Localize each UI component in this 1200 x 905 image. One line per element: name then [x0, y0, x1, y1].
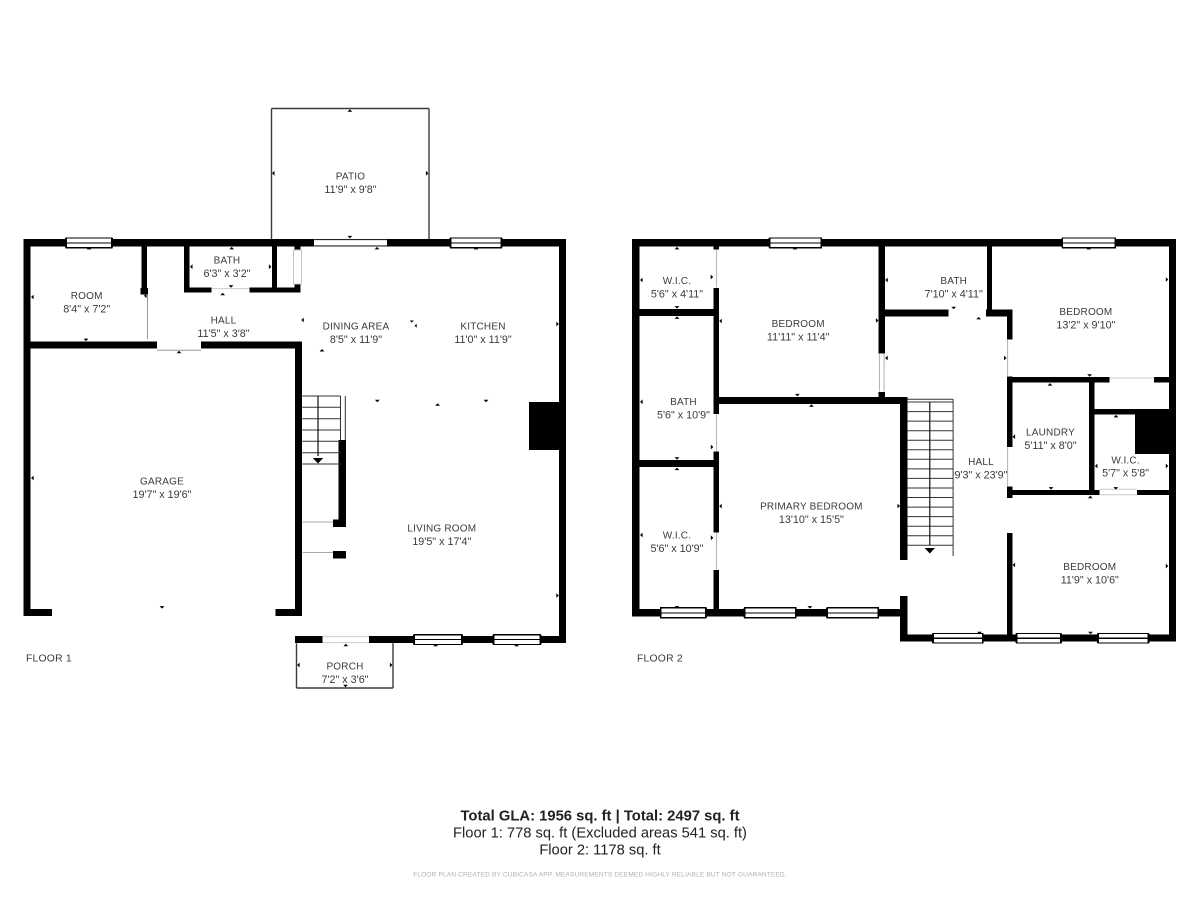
svg-text:5'7" x 5'8": 5'7" x 5'8": [1102, 468, 1149, 480]
svg-text:BATH: BATH: [670, 397, 697, 408]
svg-text:7'10" x 4'11": 7'10" x 4'11": [925, 288, 983, 300]
svg-text:11'11" x 11'4": 11'11" x 11'4": [767, 331, 830, 343]
svg-text:7'2" x 3'6": 7'2" x 3'6": [322, 674, 369, 686]
svg-text:HALL: HALL: [968, 457, 994, 468]
svg-text:BATH: BATH: [940, 276, 967, 287]
svg-text:W.I.C.: W.I.C.: [1111, 455, 1139, 466]
svg-text:13'2" x 9'10": 13'2" x 9'10": [1056, 319, 1115, 331]
svg-text:GARAGE: GARAGE: [140, 477, 184, 488]
svg-text:11'9" x 10'6": 11'9" x 10'6": [1061, 574, 1119, 586]
svg-text:9'3" x 23'9": 9'3" x 23'9": [955, 469, 1008, 481]
svg-text:BEDROOM: BEDROOM: [1059, 307, 1112, 318]
svg-text:8'4" x 7'2": 8'4" x 7'2": [63, 303, 110, 315]
svg-text:5'6" x 4'11": 5'6" x 4'11": [651, 288, 703, 300]
svg-text:5'6" x 10'9": 5'6" x 10'9": [651, 543, 704, 555]
svg-text:Total GLA: 1956 sq. ft | Total: Total GLA: 1956 sq. ft | Total: 2497 sq.…: [460, 809, 739, 825]
svg-text:19'7" x 19'6": 19'7" x 19'6": [133, 489, 192, 501]
svg-text:ROOM: ROOM: [71, 291, 103, 302]
svg-text:FLOOR 1: FLOOR 1: [26, 654, 72, 665]
svg-text:DINING AREA: DINING AREA: [323, 322, 390, 333]
svg-text:LAUNDRY: LAUNDRY: [1026, 428, 1075, 439]
svg-text:5'6" x 10'9": 5'6" x 10'9": [657, 409, 710, 421]
svg-text:W.I.C.: W.I.C.: [663, 531, 691, 542]
svg-text:6'3" x 3'2": 6'3" x 3'2": [204, 268, 251, 280]
svg-text:FLOOR PLAN CREATED BY CUBICASA: FLOOR PLAN CREATED BY CUBICASA APP. MEAS…: [413, 872, 787, 879]
svg-text:BATH: BATH: [214, 256, 241, 267]
svg-text:13'10" x 15'5": 13'10" x 15'5": [779, 514, 844, 526]
svg-text:11'5" x 3'8": 11'5" x 3'8": [197, 328, 249, 340]
svg-text:PATIO: PATIO: [336, 172, 366, 183]
svg-text:BEDROOM: BEDROOM: [772, 319, 825, 330]
svg-text:BEDROOM: BEDROOM: [1063, 562, 1116, 573]
svg-text:HALL: HALL: [211, 316, 237, 327]
svg-text:Floor 1: 778 sq. ft (Excluded: Floor 1: 778 sq. ft (Excluded areas 541 …: [453, 826, 747, 842]
svg-text:8'5" x 11'9": 8'5" x 11'9": [330, 334, 382, 346]
svg-text:W.I.C.: W.I.C.: [663, 276, 691, 287]
svg-text:11'9" x 9'8": 11'9" x 9'8": [324, 184, 376, 196]
svg-text:5'11" x 8'0": 5'11" x 8'0": [1024, 440, 1076, 452]
svg-text:Floor 2: 1178 sq. ft: Floor 2: 1178 sq. ft: [539, 843, 660, 859]
svg-text:LIVING ROOM: LIVING ROOM: [407, 524, 476, 535]
svg-text:11'0" x 11'9": 11'0" x 11'9": [454, 334, 512, 346]
svg-text:19'5" x 17'4": 19'5" x 17'4": [412, 536, 471, 548]
svg-text:PORCH: PORCH: [326, 662, 363, 673]
svg-text:PRIMARY BEDROOM: PRIMARY BEDROOM: [760, 502, 863, 513]
svg-text:KITCHEN: KITCHEN: [460, 322, 505, 333]
svg-text:FLOOR 2: FLOOR 2: [637, 654, 683, 665]
